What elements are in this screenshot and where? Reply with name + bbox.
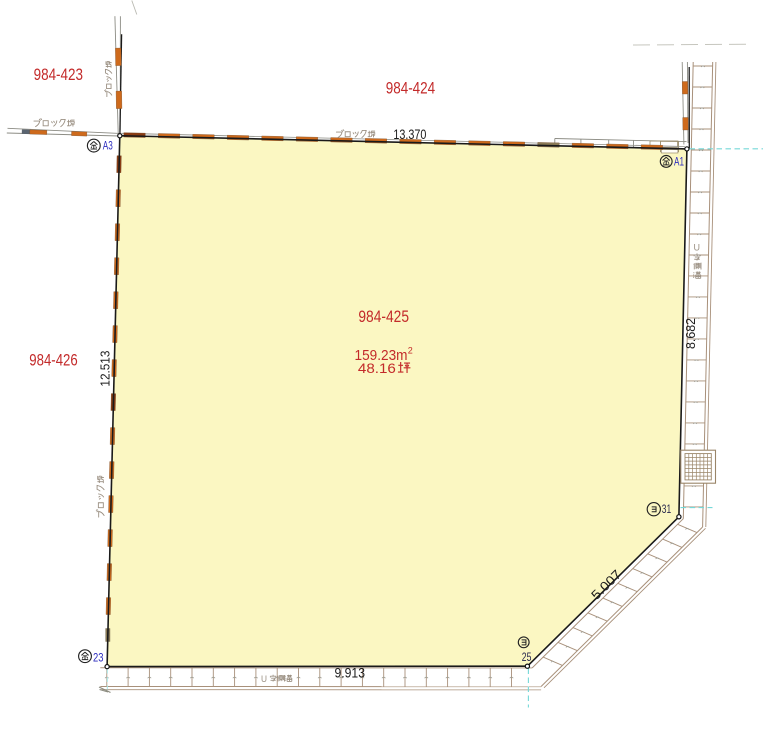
svg-text:U: U xyxy=(694,243,701,253)
svg-text:2: 2 xyxy=(408,346,413,356)
svg-text:984-426: 984-426 xyxy=(29,350,77,369)
svg-text:984-423: 984-423 xyxy=(34,65,83,84)
svg-text:A1: A1 xyxy=(674,156,684,168)
svg-text:31: 31 xyxy=(662,504,671,516)
svg-text:8.682: 8.682 xyxy=(683,318,698,349)
svg-text:23: 23 xyxy=(93,652,104,664)
svg-text:25: 25 xyxy=(522,652,532,664)
svg-text:984-425: 984-425 xyxy=(358,307,409,326)
svg-text:13.370: 13.370 xyxy=(393,127,426,142)
svg-text:984-424: 984-424 xyxy=(386,79,436,98)
svg-text:U: U xyxy=(261,674,267,684)
svg-text:12.513: 12.513 xyxy=(98,351,113,387)
svg-text:A3: A3 xyxy=(103,140,113,152)
svg-text:48.16: 48.16 xyxy=(358,360,396,376)
svg-text:9.913: 9.913 xyxy=(335,666,366,681)
